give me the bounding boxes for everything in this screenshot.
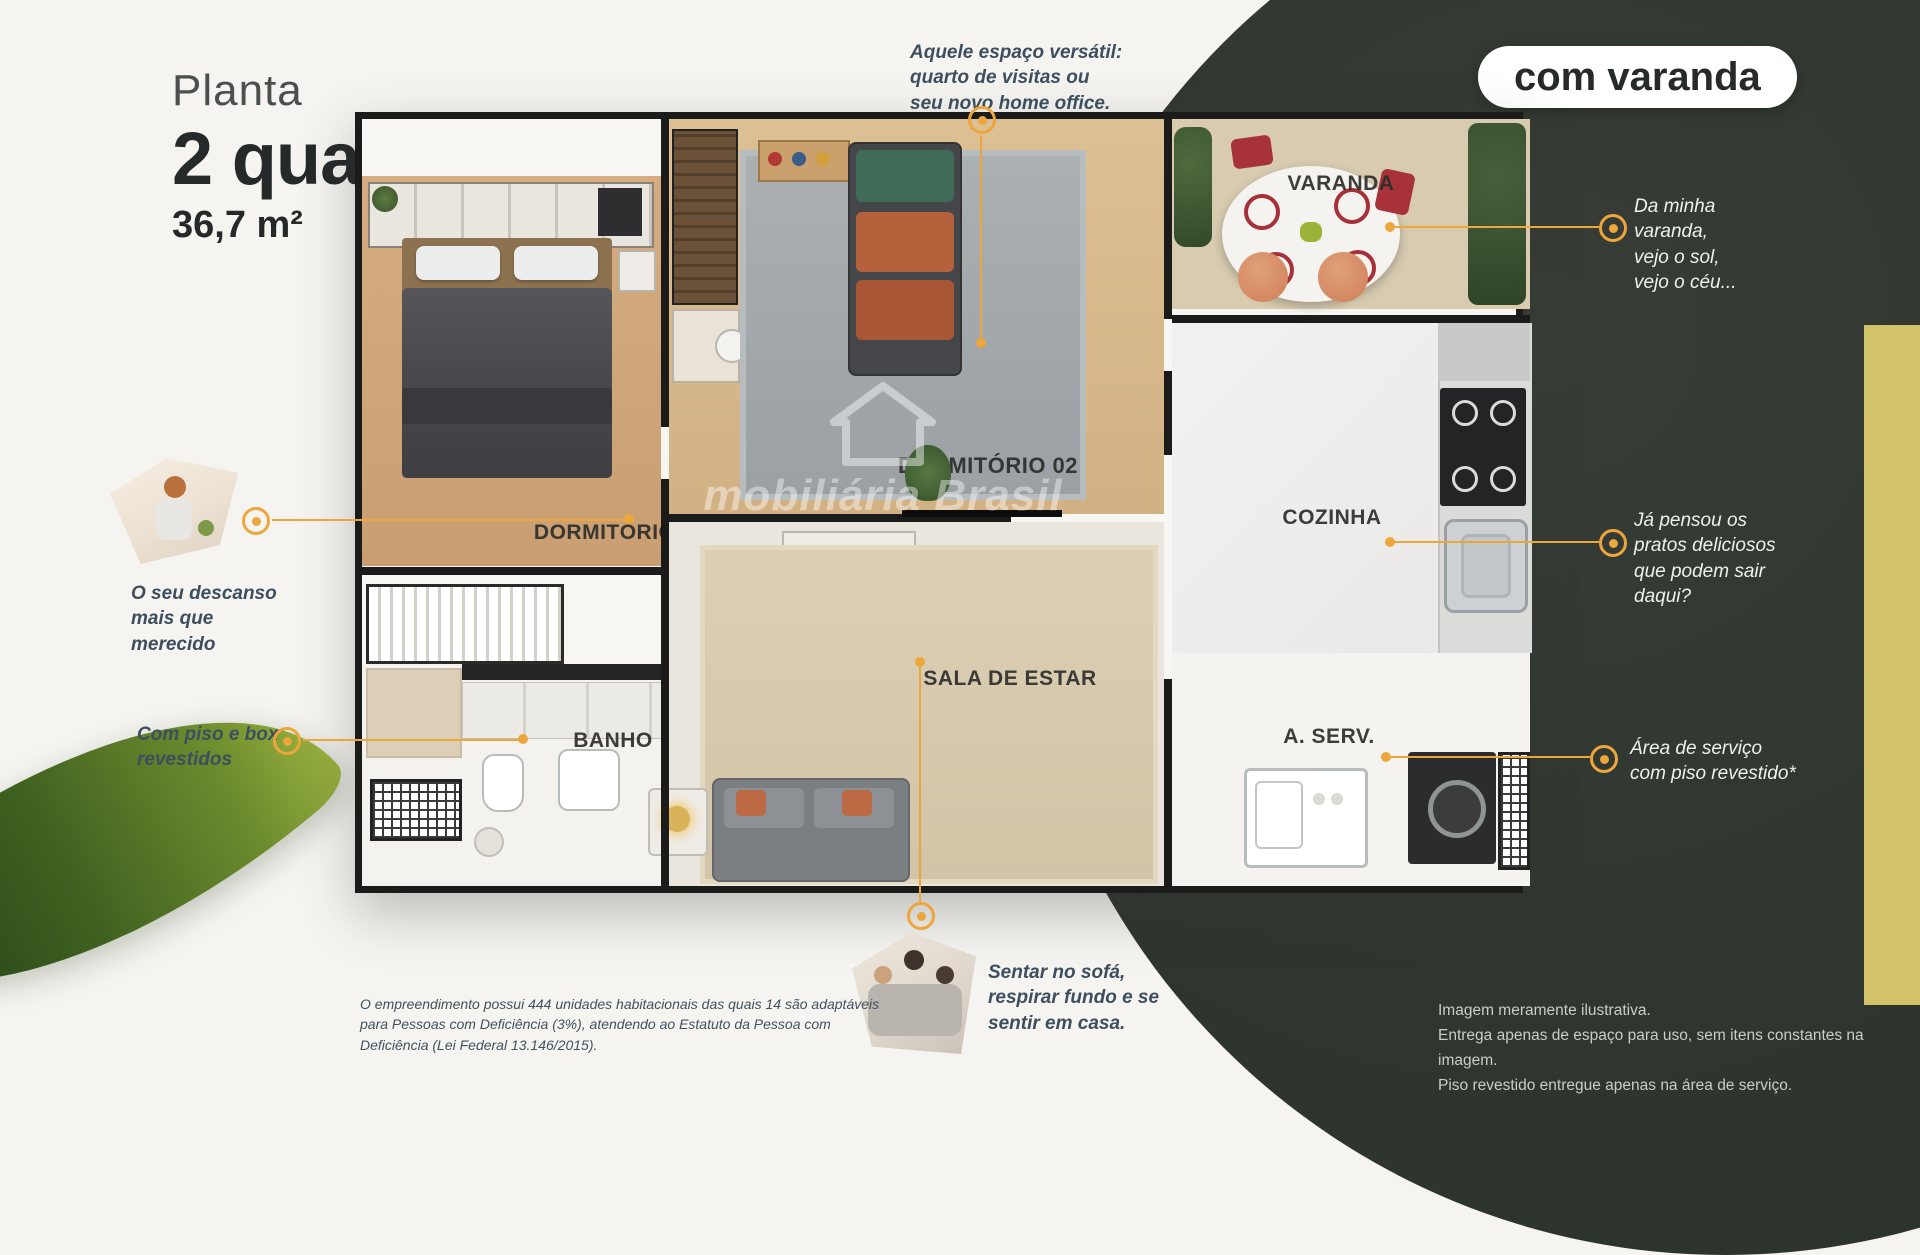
- badge-com-varanda: com varanda: [1478, 46, 1797, 108]
- tv-wall: [902, 510, 1062, 517]
- cushion-rust: [856, 280, 954, 340]
- callout-marker-icon: [273, 727, 301, 755]
- room-banho: [362, 664, 662, 886]
- note-sofa: Sentar no sofá, respirar fundo e se sent…: [988, 960, 1159, 1036]
- callout-dot: [976, 338, 986, 348]
- note-banho: Com piso e box revestidos: [137, 722, 278, 773]
- cushion-teal: [856, 150, 954, 202]
- stove: [1440, 388, 1526, 506]
- wall: [661, 479, 669, 886]
- flyer-canvas: { "title": { "kicker": "Planta", "main":…: [0, 0, 1920, 1077]
- photo-child: [110, 458, 238, 564]
- bed: [402, 238, 612, 478]
- toy: [816, 152, 830, 166]
- room-dorm1: [362, 176, 661, 566]
- disclaimer-left: O empreendimento possui 444 unidades hab…: [360, 994, 879, 1055]
- room-label-varanda: VARANDA: [1231, 172, 1451, 196]
- soap: [1313, 793, 1325, 805]
- utility-hatch: [1498, 752, 1530, 870]
- plant: [372, 186, 398, 212]
- closet-dorm2: [672, 129, 738, 305]
- room-varanda: [1172, 119, 1530, 309]
- balcony-glazing: [1164, 119, 1172, 319]
- room-cozinha: [1172, 323, 1530, 653]
- stool: [1318, 252, 1368, 302]
- note-office: Aquele espaço versátil: quarto de visita…: [910, 40, 1122, 116]
- room-label-aserv: A. SERV.: [1209, 725, 1449, 749]
- burner: [1452, 400, 1478, 426]
- sofa: [712, 778, 910, 882]
- planter: [1468, 123, 1526, 305]
- note-aserv: Área de serviço com piso revestido*: [1630, 736, 1796, 787]
- toy: [792, 152, 806, 166]
- duvet: [402, 288, 612, 478]
- wall: [1164, 679, 1172, 886]
- sofa-pillow: [736, 790, 766, 816]
- yellow-edge-strip: [1864, 325, 1920, 1005]
- photo-figure: [936, 966, 954, 984]
- daybed: [848, 142, 962, 376]
- side-table: [648, 788, 708, 856]
- wall: [362, 567, 669, 575]
- bath-sink: [558, 749, 620, 811]
- plate: [1244, 194, 1280, 230]
- disclaimer-line: Imagem meramente ilustrativa.: [1438, 998, 1920, 1023]
- washer: [1408, 752, 1496, 864]
- photo-figure: [904, 950, 924, 970]
- soap: [1331, 793, 1343, 805]
- badge-label: com varanda: [1514, 55, 1761, 100]
- callout-marker-icon: [242, 507, 270, 535]
- note-cozinha: Já pensou os pratos deliciosos que podem…: [1634, 508, 1776, 610]
- wall: [661, 119, 669, 427]
- room-sala: [669, 522, 1164, 886]
- pillow: [416, 246, 500, 280]
- blanket-fold: [402, 388, 612, 424]
- wall: [1172, 315, 1530, 323]
- pillow: [514, 246, 598, 280]
- floorplan: DORMITÓRIO 01 BANHO DORMITÓRIO 02: [355, 112, 1523, 893]
- room-label-cozinha: COZINHA: [1212, 506, 1452, 530]
- stool: [1238, 252, 1288, 302]
- cushion-rust: [856, 212, 954, 272]
- callout-line: [980, 136, 982, 340]
- centerpiece: [1300, 222, 1322, 242]
- callout-line: [1388, 756, 1590, 758]
- callout-marker-icon: [907, 902, 935, 930]
- disclaimer-right: Imagem meramente ilustrativa. Entrega ap…: [1438, 998, 1920, 1098]
- photo-figure: [198, 520, 214, 536]
- shower: [366, 668, 462, 758]
- room-aserv: [1172, 653, 1530, 886]
- callout-dot: [518, 734, 528, 744]
- kitchen-sink: [1444, 519, 1528, 613]
- burner: [1490, 400, 1516, 426]
- callout-line: [1392, 541, 1599, 543]
- toilet: [482, 754, 524, 812]
- room-label-sala: SALA DE ESTAR: [890, 667, 1130, 691]
- wall: [1164, 371, 1172, 455]
- callout-marker-icon: [1599, 529, 1627, 557]
- decor-leaf: [0, 602, 352, 1103]
- fridge: [1438, 323, 1530, 381]
- sofa-pillow: [842, 790, 872, 816]
- photo-figure: [868, 984, 962, 1036]
- washer-door: [1428, 780, 1486, 838]
- callout-marker-icon: [1590, 745, 1618, 773]
- callout-marker-icon: [1599, 214, 1627, 242]
- photo-figure: [156, 498, 192, 540]
- planter: [1174, 127, 1212, 247]
- stool: [474, 827, 504, 857]
- photo-figure: [164, 476, 186, 498]
- callout-line: [303, 739, 523, 741]
- burner: [1452, 466, 1478, 492]
- toy: [768, 152, 782, 166]
- disclaimer-line: Entrega apenas de espaço para uso, sem i…: [1438, 1023, 1920, 1073]
- chair: [1230, 134, 1274, 169]
- callout-dot: [624, 514, 634, 524]
- tank: [1255, 781, 1303, 849]
- title-kicker: Planta: [172, 66, 496, 116]
- note-varanda: Da minha varanda, vejo o sol, vejo o céu…: [1634, 194, 1736, 296]
- closet: [366, 584, 564, 664]
- disclaimer-line: Piso revestido entregue apenas na área d…: [1438, 1073, 1920, 1098]
- toy-shelf: [758, 140, 850, 182]
- burner: [1490, 466, 1516, 492]
- wardrobe-tv: [598, 188, 642, 236]
- callout-line: [919, 663, 921, 902]
- note-bed: O seu descanso mais que merecido: [131, 581, 277, 657]
- nightstand: [618, 250, 656, 292]
- sink-basin: [1461, 534, 1511, 598]
- callout-marker-icon: [968, 106, 996, 134]
- bath-counter: [462, 664, 662, 680]
- callout-line: [272, 519, 628, 521]
- laundry-sink: [1244, 768, 1368, 868]
- callout-line: [1392, 226, 1599, 228]
- photo-figure: [874, 966, 892, 984]
- plant: [905, 445, 951, 501]
- shower-floor-hatch: [370, 779, 462, 841]
- room-label-dorm2: DORMITÓRIO 02: [868, 453, 1108, 479]
